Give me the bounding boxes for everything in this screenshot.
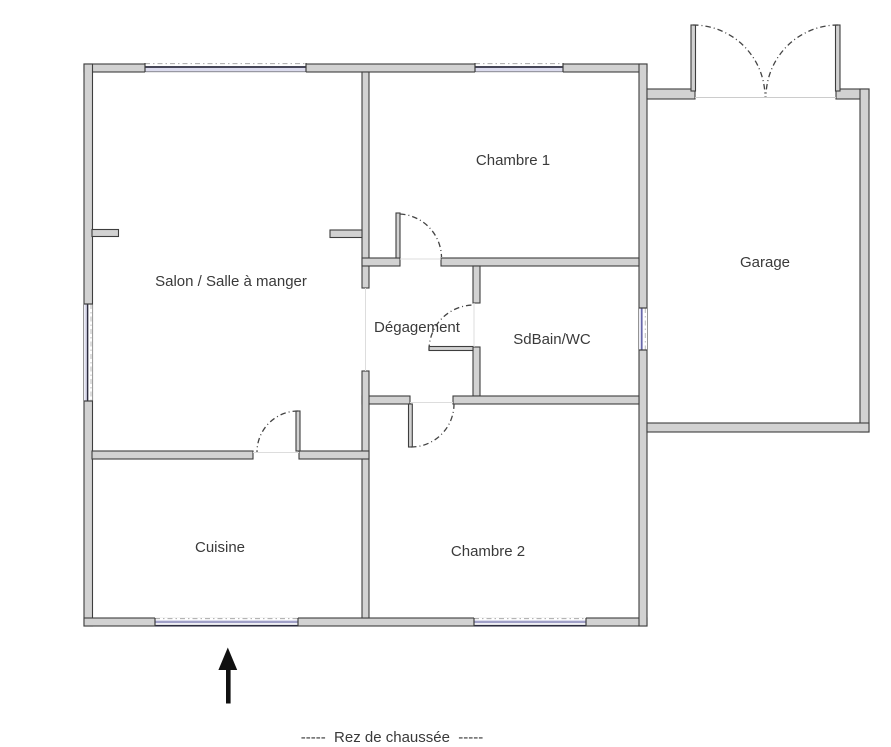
svg-text:Garage: Garage xyxy=(740,254,790,271)
svg-text:----- Rez de chaussée -----: ----- Rez de chaussée ----- xyxy=(301,729,484,746)
svg-text:Dégagement: Dégagement xyxy=(374,319,461,336)
svg-text:Cuisine: Cuisine xyxy=(195,539,245,556)
svg-text:Chambre 1: Chambre 1 xyxy=(476,152,550,169)
svg-text:SdBain/WC: SdBain/WC xyxy=(513,331,591,348)
svg-text:Salon / Salle à manger: Salon / Salle à manger xyxy=(155,273,307,290)
svg-text:Chambre 2: Chambre 2 xyxy=(451,543,525,560)
